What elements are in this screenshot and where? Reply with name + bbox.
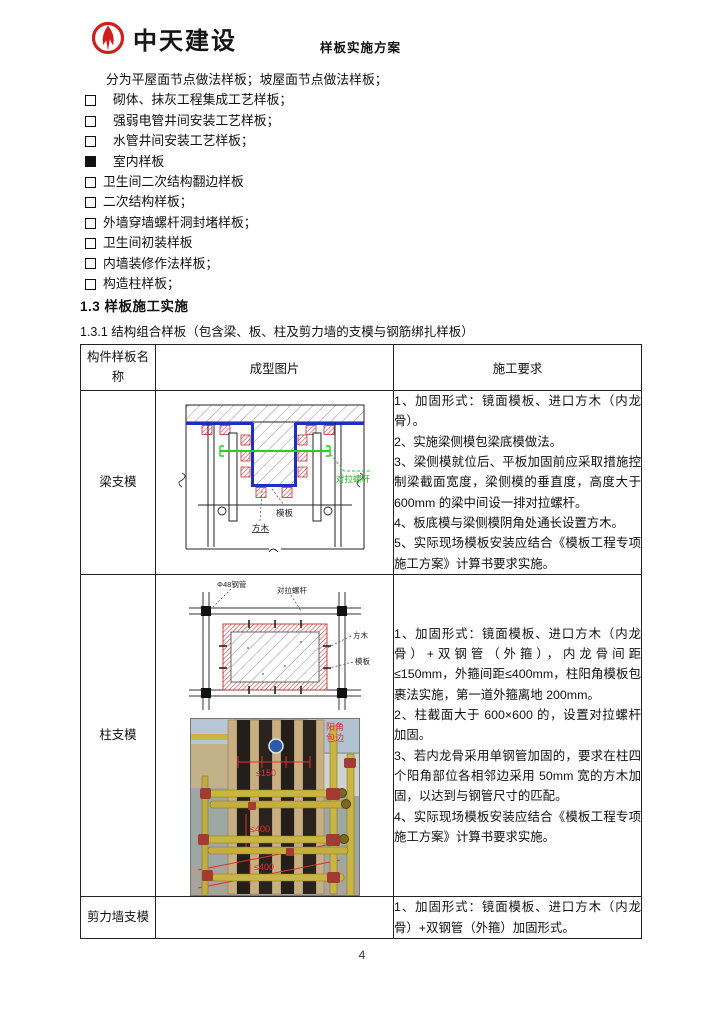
requirement-item: 1、加固形式：镜面模板、进口方木（内龙骨）。 [394,391,641,432]
timber-label: 方木 [252,523,270,533]
checklist-item: 内墙装修作法样板； [85,254,651,274]
logo-icon [90,20,126,56]
col-header-construction-requirements: 施工要求 [394,345,642,391]
checklist-item: 卫生间初装样板 [85,233,651,253]
checklist-item: 室内样板 [85,152,651,172]
checklist-label: 水管井间安装工艺样板； [113,131,254,152]
checklist-label: 外墙穿墙螺杆洞封堵样板； [103,213,257,234]
checklist-label: 卫生间初装样板 [103,233,193,254]
photo-dim-top: ≤150 [256,768,276,778]
column-core [231,632,319,682]
checkbox-icon [85,197,96,208]
checklist-item: 水管井间安装工艺样板； [85,131,651,151]
table-row-shear-wall: 剪力墙支模 1、加固形式：镜面模板、进口方木（内龙骨）+双钢管（外箍）加固形式。 [81,897,642,939]
section-heading-1-3-1: 1.3.1 结构组合样板（包含梁、板、柱及剪力墙的支模与钢筋绑扎样板） [80,321,474,340]
column-plan-diagram: Φ48钢管 对拉螺杆 方木 模板 [173,578,377,716]
checklist-label: 卫生间二次结构翻边样板 [103,172,244,193]
checklist-label: 砌体、抹灰工程集成工艺样板； [113,90,292,111]
row-name-shear-wall: 剪力墙支模 [81,897,156,939]
checkbox-icon [85,116,96,127]
checklist-item: 强弱电管井间安装工艺样板； [85,111,651,131]
requirement-item: 5、实际现场模板安装应结合《模板工程专项施工方案》计算书要求实施。 [394,533,641,574]
photo-dim-mid: ≤400 [250,824,270,834]
checkbox-icon [85,238,96,249]
checklist-item: 砌体、抹灰工程集成工艺样板； [85,91,651,111]
formwork-table: 构件样板名称 成型图片 施工要求 梁支模 [80,344,642,939]
section-heading-1-3: 1.3 样板施工实施 [80,295,189,315]
shear-wall-image-cell [156,897,394,939]
checklist-label: 室内样板 [113,152,164,173]
beam-image-cell: 对拉螺杆 模板 方木 [156,391,394,575]
requirement-item: 2、实施梁侧模包梁底模做法。 [394,432,641,452]
checkbox-icon [85,136,96,147]
table-header-row: 构件样板名称 成型图片 施工要求 [81,345,642,391]
col-header-component-name: 构件样板名称 [81,345,156,391]
checklist-section: 分为平屋面节点做法样板；坡屋面节点做法样板； 砌体、抹灰工程集成工艺样板； 强弱… [85,70,651,294]
checkbox-icon [85,95,96,106]
checklist-label: 二次结构样板； [103,192,193,213]
col-header-formed-picture: 成型图片 [156,345,394,391]
document-header-title: 样板实施方案 [320,37,401,56]
checkbox-icon [85,177,96,188]
checklist-label: 构造柱样板； [103,274,180,295]
checkbox-icon [85,279,96,290]
sticker-badge [269,739,283,753]
checklist-item: 构造柱样板； [85,274,651,294]
tie-rod-label: 对拉螺杆 [277,585,307,595]
requirement-item: 3、若内龙骨采用单钢管加固的，要求在柱四个阳角部位各相邻边采用 50mm 宽的方… [394,746,641,807]
checkbox-icon [85,156,96,167]
photo-corner-label-1: 阳角 [326,721,344,732]
intro-line: 分为平屋面节点做法样板；坡屋面节点做法样板； [85,70,651,91]
photo-corner-label-2: 包边 [326,732,344,743]
logo-text: 中天建设 [133,21,237,56]
timber-label: 方木 [353,630,368,640]
company-logo: 中天建设 [90,20,237,56]
checklist-item: 二次结构样板； [85,192,651,212]
beam-requirements: 1、加固形式：镜面模板、进口方木（内龙骨）。 2、实施梁侧模包梁底模做法。 3、… [394,391,642,575]
formwork-label: 模板 [276,508,294,518]
row-name-column: 柱支模 [81,575,156,897]
column-requirements: 1、加固形式：镜面模板、进口方木（内龙骨）+双钢管（外箍），内龙骨间距≤150m… [394,575,642,897]
checklist-item: 外墙穿墙螺杆洞封堵样板； [85,213,651,233]
document-page: 中天建设 样板实施方案 分为平屋面节点做法样板；坡屋面节点做法样板； 砌体、抹灰… [0,0,724,1024]
requirement-item: 4、实际现场模板安装应结合《模板工程专项施工方案》计算书要求实施。 [394,807,641,848]
page-number: 4 [0,948,724,962]
requirement-item: 4、板底模与梁侧模阴角处通长设置方木。 [394,513,641,533]
photo-dim-bottom: ≤400 [254,862,274,872]
requirement-item: 2、柱截面大于 600×600 的，设置对拉螺杆加固。 [394,705,641,746]
checklist-label: 内墙装修作法样板； [103,254,218,275]
checklist-label: 强弱电管井间安装工艺样板； [113,111,279,132]
formwork-label: 模板 [355,656,370,666]
row-name-beam: 梁支模 [81,391,156,575]
table-row-column: 柱支模 [81,575,642,897]
requirement-item: 1、加固形式：镜面模板、进口方木（内龙骨）+双钢管（外箍），内龙骨间距≤150m… [394,624,641,705]
requirement-item: 1、加固形式：镜面模板、进口方木（内龙骨）+双钢管（外箍）加固形式。 [394,897,641,938]
beam-section [254,422,294,484]
tie-rod-label: 对拉螺杆 [336,474,371,484]
beam-formwork-diagram: 对拉螺杆 模板 方木 [172,399,378,563]
pipe-label: Φ48钢管 [217,579,247,589]
checkbox-icon [85,258,96,269]
slab-section [186,405,364,422]
shear-wall-requirements: 1、加固形式：镜面模板、进口方木（内龙骨）+双钢管（外箍）加固形式。 [394,897,642,939]
table-row-beam: 梁支模 [81,391,642,575]
checkbox-icon [85,218,96,229]
checklist-item: 卫生间二次结构翻边样板 [85,172,651,192]
column-image-cell: Φ48钢管 对拉螺杆 方木 模板 [156,575,394,897]
requirement-item: 3、梁侧模就位后、平板加固前应采取措施控制梁截面宽度，梁侧模的垂直度，高度大于 … [394,452,641,513]
column-formwork-photo: 阳角 包边 ≤150 ≤400 ≤400 [190,718,360,896]
